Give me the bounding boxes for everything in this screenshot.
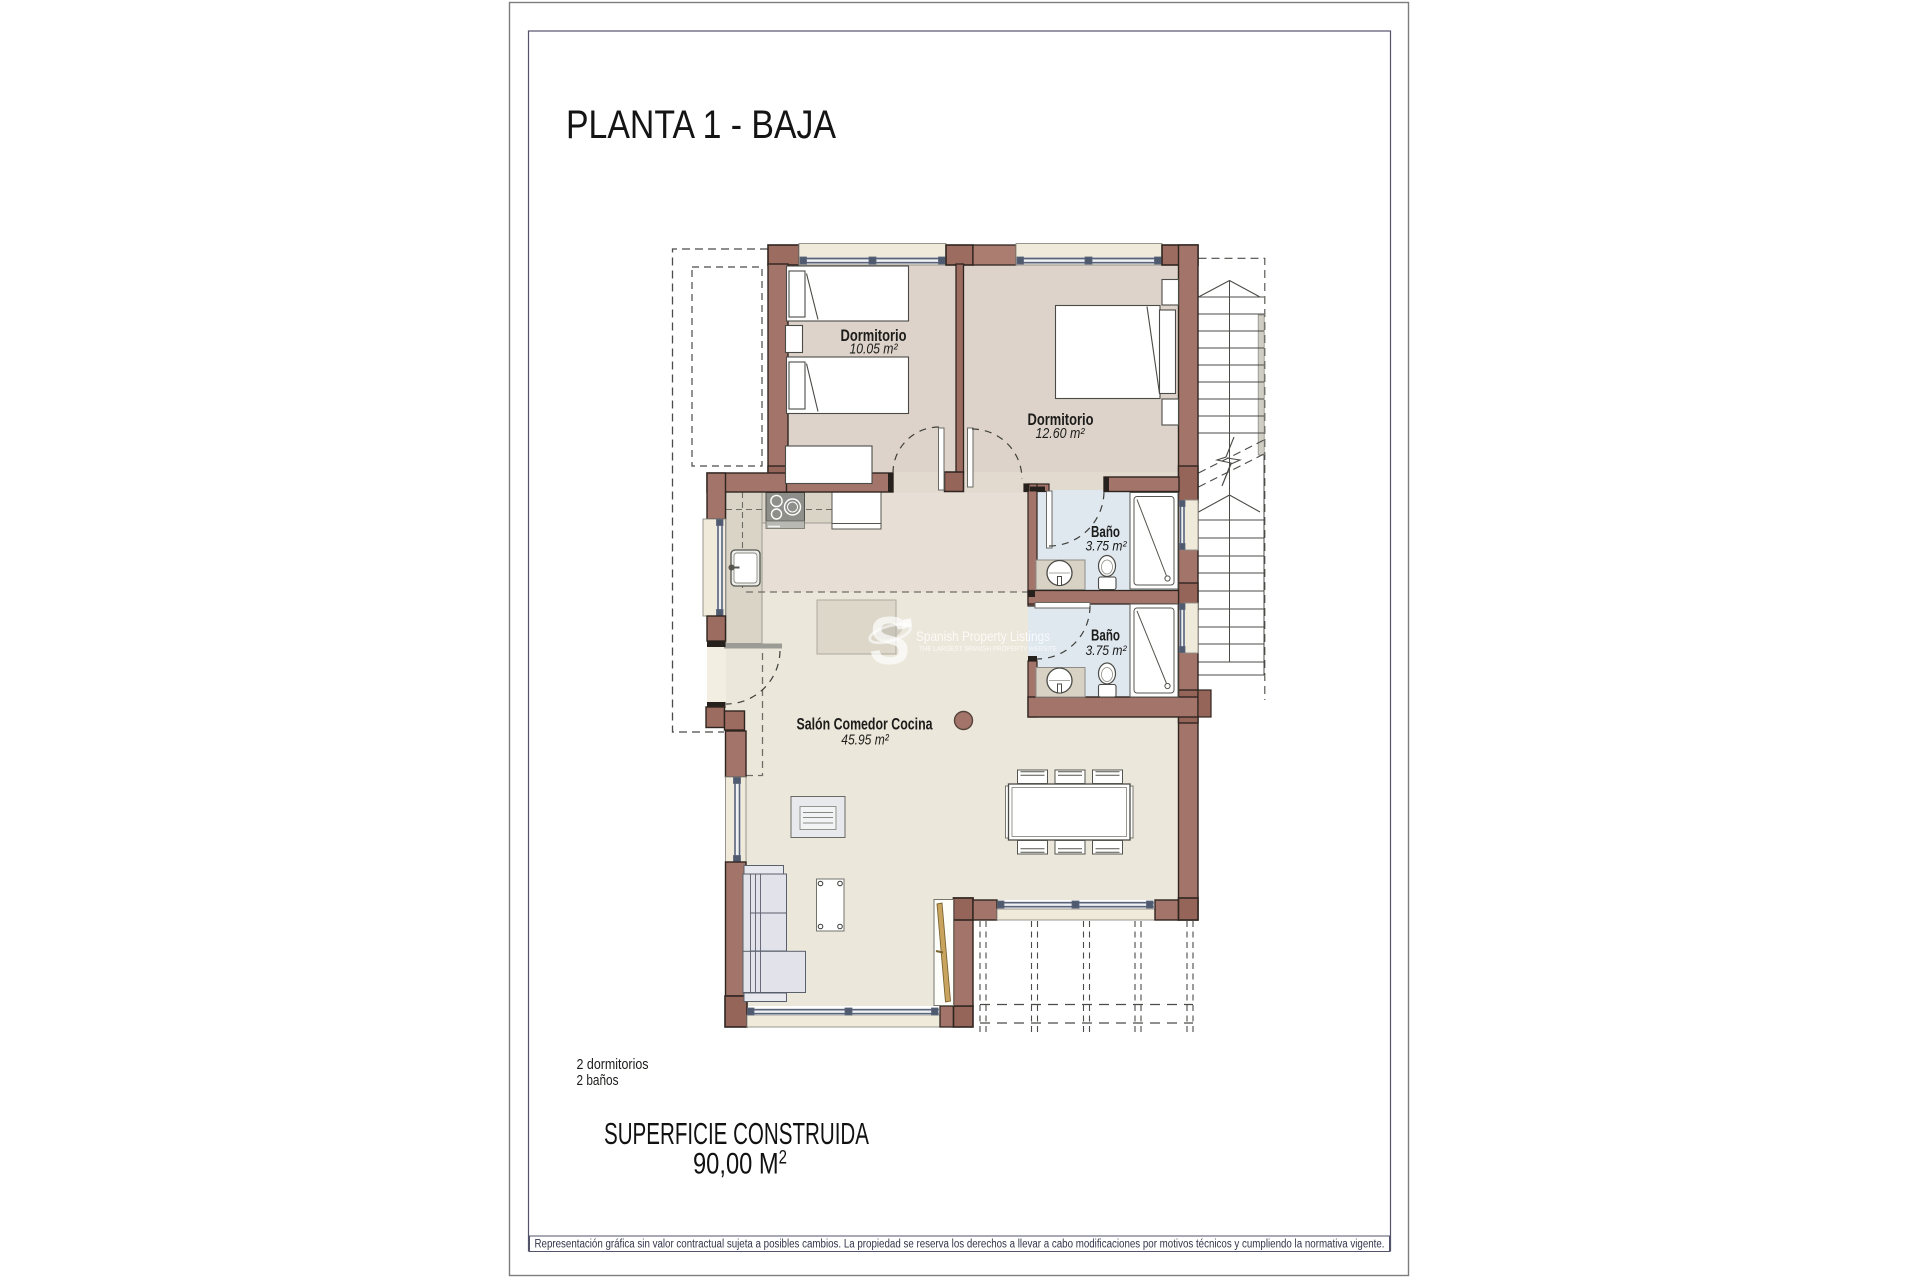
- svg-text:3.75 m²: 3.75 m²: [1086, 538, 1128, 554]
- svg-text:2 dormitorios: 2 dormitorios: [577, 1057, 649, 1073]
- svg-text:10.05 m²: 10.05 m²: [850, 342, 899, 358]
- svg-text:90,00 M2: 90,00 M2: [693, 1148, 787, 1181]
- svg-text:3.75 m²: 3.75 m²: [1086, 642, 1128, 658]
- svg-text:PLANTA 1 - BAJA: PLANTA 1 - BAJA: [566, 103, 836, 147]
- svg-text:Spanish Property Listings: Spanish Property Listings: [916, 629, 1050, 644]
- svg-text:THE LARGEST SPANISH PROPERTY W: THE LARGEST SPANISH PROPERTY WEBSITE: [919, 644, 1057, 653]
- svg-text:2 baños: 2 baños: [577, 1073, 619, 1089]
- svg-text:Representación gráfica sin val: Representación gráfica sin valor contrac…: [535, 1239, 1385, 1251]
- svg-text:12.60 m²: 12.60 m²: [1036, 426, 1086, 442]
- svg-text:45.95 m²: 45.95 m²: [841, 732, 889, 749]
- svg-text:SUPERFICIE CONSTRUIDA: SUPERFICIE CONSTRUIDA: [604, 1116, 869, 1151]
